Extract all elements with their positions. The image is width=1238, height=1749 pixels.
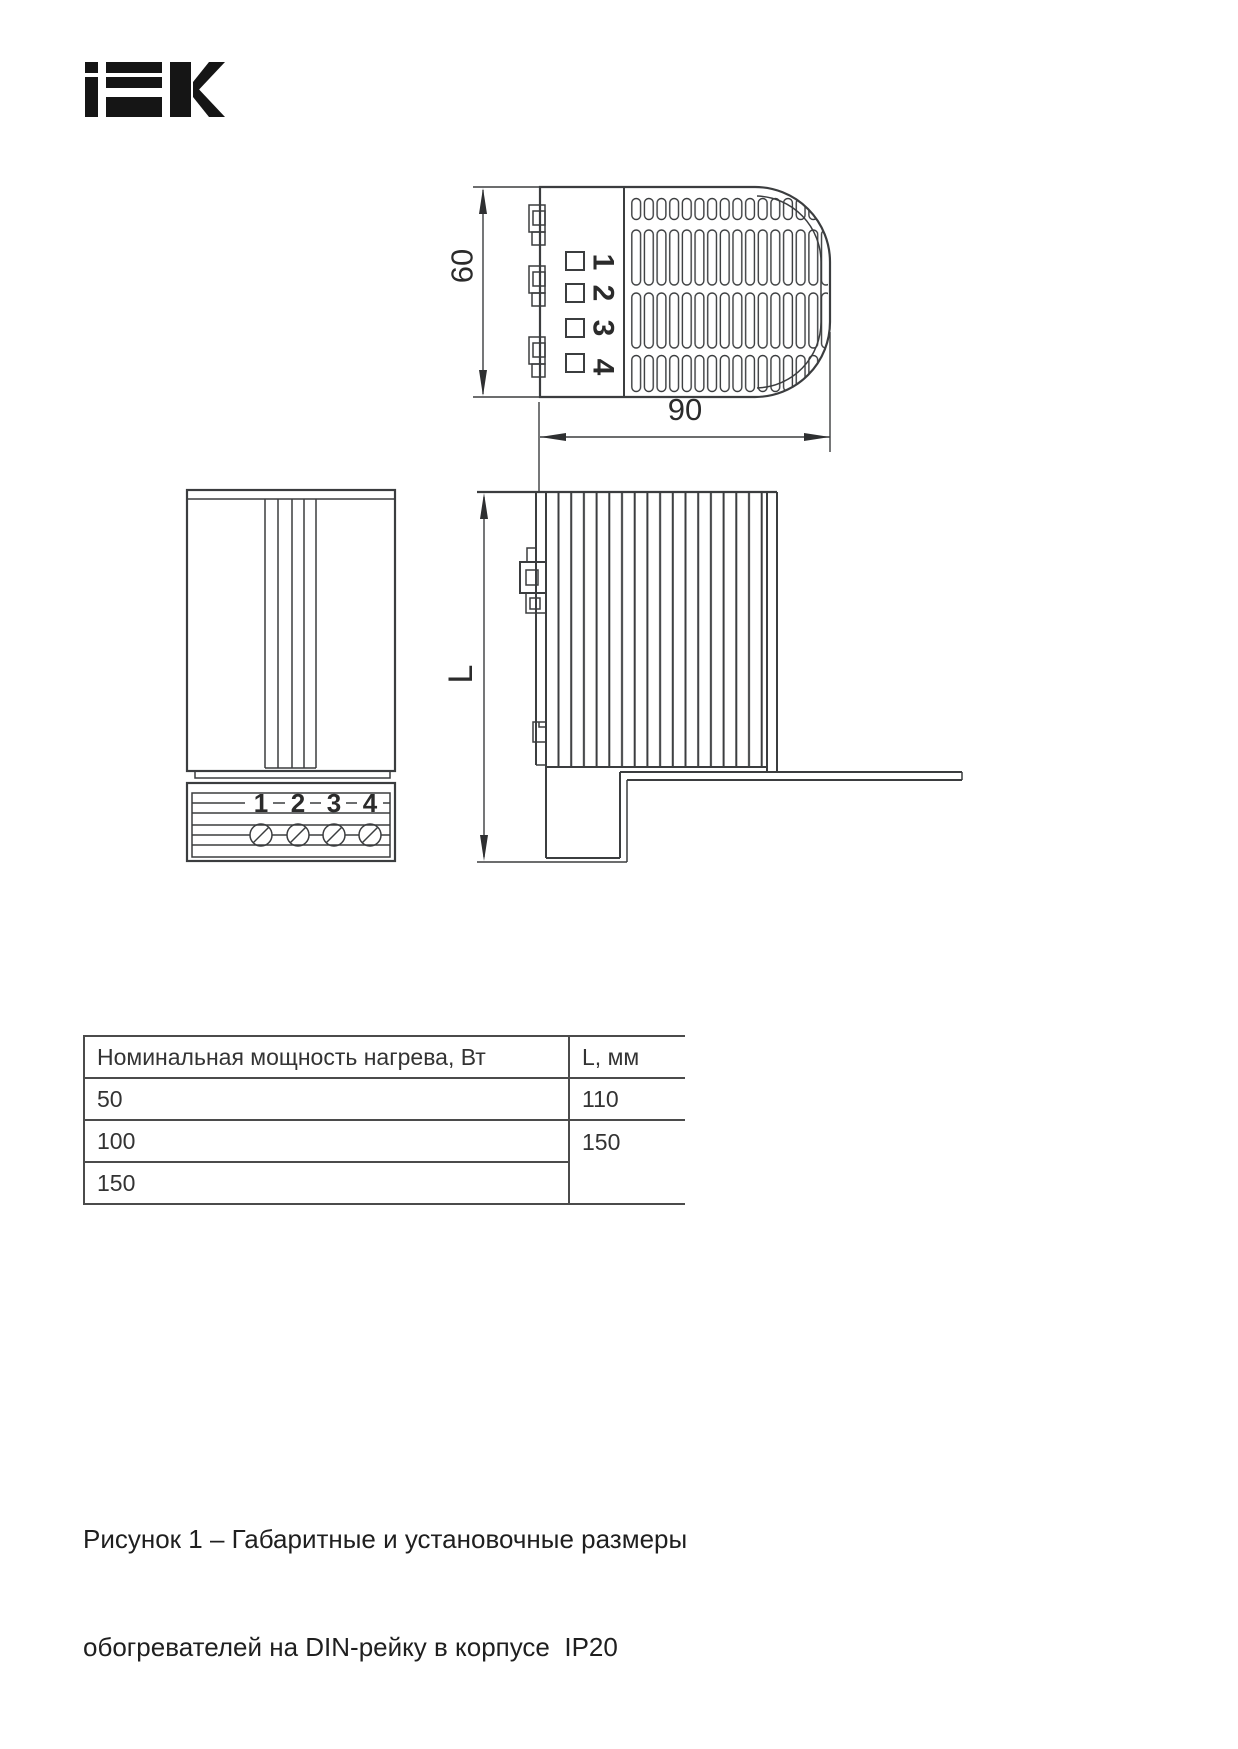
vent-column (265, 499, 316, 768)
table-header-power: Номинальная мощность нагрева, Вт (84, 1036, 569, 1078)
document-page: 1 2 3 4 60 90 (0, 0, 1238, 1749)
top-view: 1 2 3 4 (529, 187, 830, 397)
terminal-number: 3 (327, 788, 341, 818)
technical-drawing: 1 2 3 4 60 90 (0, 0, 1238, 920)
table-header-length: L, мм (569, 1036, 685, 1078)
table-header-row: Номинальная мощность нагрева, Вт L, мм (84, 1036, 685, 1078)
din-rail-clip (520, 548, 546, 742)
terminal-markers (566, 252, 584, 372)
terminal-number: 2 (291, 788, 305, 818)
length-cell-merged: 150 (569, 1120, 685, 1204)
length-cell: 110 (569, 1078, 685, 1120)
terminal-number: 2 (587, 285, 620, 302)
table-row: 100 150 (84, 1120, 685, 1162)
terminal-number: 3 (587, 320, 620, 337)
terminal-number: 1 (587, 254, 620, 271)
rail-flange (546, 772, 962, 862)
din-clip (529, 266, 545, 306)
terminal-number: 1 (254, 788, 268, 818)
terminal-block: 1 2 3 4 (187, 783, 395, 861)
din-clip (529, 205, 545, 245)
power-cell: 150 (84, 1162, 569, 1204)
table-row: 50 110 (84, 1078, 685, 1120)
side-view (477, 492, 962, 862)
terminal-number: 4 (363, 788, 378, 818)
height-dim-label: 60 (445, 249, 480, 283)
power-cell: 50 (84, 1078, 569, 1120)
terminal-screws (192, 824, 390, 846)
terminal-number: 4 (587, 359, 620, 376)
width-dim-label: 90 (668, 392, 702, 427)
caption-line-1: Рисунок 1 – Габаритные и установочные ра… (83, 1521, 763, 1557)
length-dim-label: L (442, 665, 480, 684)
front-view: 1 2 3 4 (187, 490, 395, 861)
ventilation-grille (630, 196, 828, 395)
dimension-60: 60 (445, 187, 541, 397)
heater-ribs (547, 492, 767, 767)
figure-caption: Рисунок 1 – Габаритные и установочные ра… (83, 1449, 763, 1737)
caption-line-2: обогревателей на DIN-рейку в корпусе IP2… (83, 1629, 763, 1665)
dimensions-table: Номинальная мощность нагрева, Вт L, мм 5… (83, 1035, 685, 1205)
power-cell: 100 (84, 1120, 569, 1162)
din-clip (529, 337, 545, 377)
